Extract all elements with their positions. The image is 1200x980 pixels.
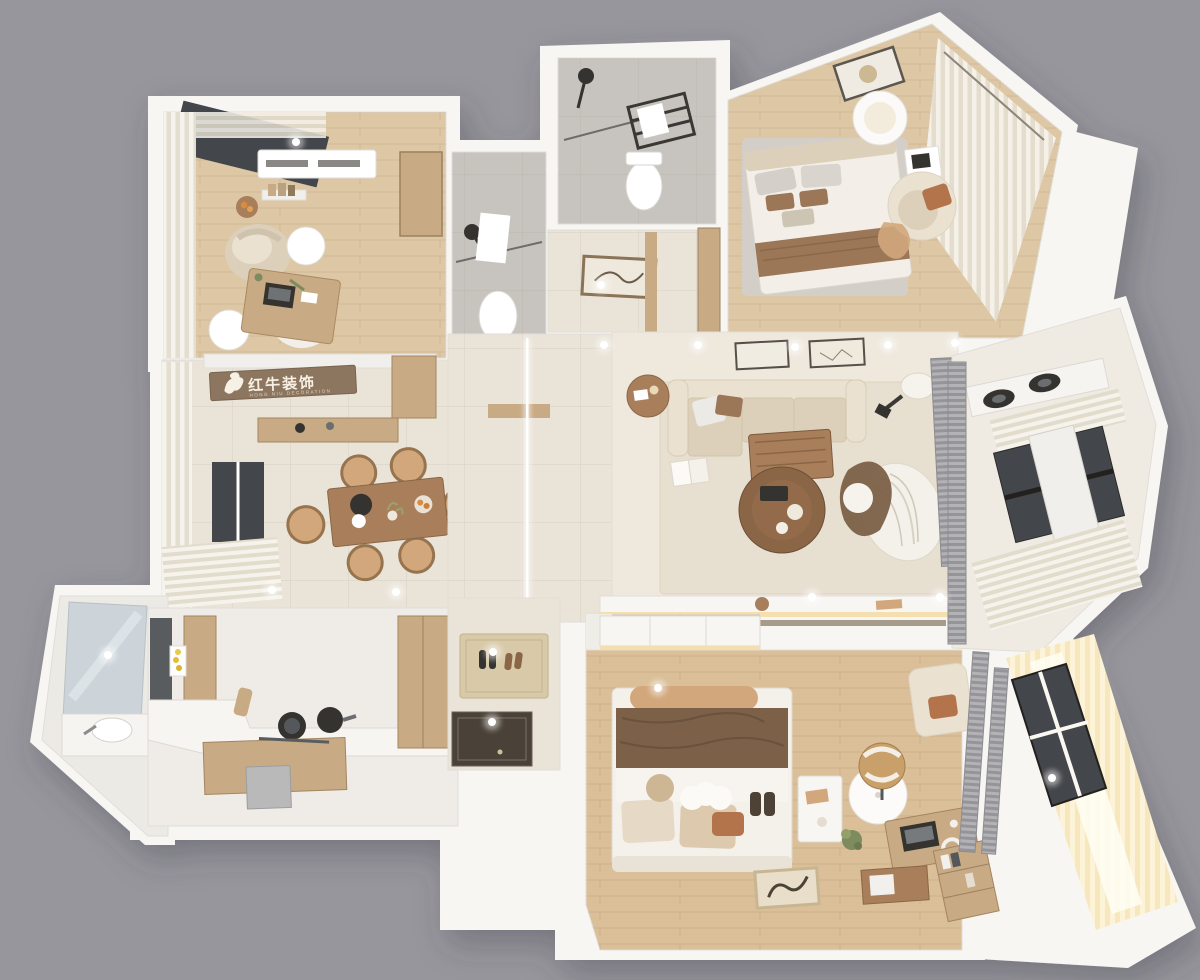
study-door-panel: [400, 152, 442, 236]
hall-door-jamb: [645, 232, 657, 332]
downlight: [932, 589, 948, 605]
clock: [817, 817, 827, 827]
downlight: [690, 337, 706, 353]
pillow-white: [843, 483, 873, 513]
downlight: [804, 589, 820, 605]
corridor-tile: [448, 334, 632, 622]
downlight: [288, 134, 304, 150]
gray-bin: [246, 765, 291, 809]
lemon: [176, 665, 182, 671]
lamp-cord: [875, 792, 881, 798]
black-tray: [760, 486, 788, 501]
coffee-table-round: [739, 467, 825, 553]
ac-vent: [266, 160, 308, 167]
downlight: [596, 337, 612, 353]
ac-vent: [318, 160, 360, 167]
closet-led: [600, 646, 760, 650]
corridor-ledge: [488, 404, 550, 418]
shoe-black: [479, 650, 486, 669]
orange-fruit: [247, 206, 253, 212]
pillow-brown: [765, 192, 795, 211]
lamp-inner: [864, 102, 896, 134]
toilet-tank: [626, 152, 662, 165]
dining-chair: [346, 544, 383, 581]
sofa-arm-left: [668, 380, 688, 456]
guest-bed: [744, 134, 912, 295]
kb-louver-strip: [948, 362, 966, 644]
side-table-left: [627, 375, 669, 417]
kitchen-balcony: [948, 308, 1156, 652]
pillow-gray: [800, 163, 841, 188]
storage-box: [861, 866, 929, 905]
pillow-tan: [621, 799, 675, 844]
bolster-blanket: [630, 686, 758, 710]
bath2-toilet: [626, 152, 662, 210]
lemon: [175, 649, 181, 655]
pillow-terracotta: [712, 812, 744, 836]
pillow-round: [646, 774, 674, 802]
kitchen: [148, 608, 458, 826]
tray-card: [633, 389, 648, 401]
kitchen-cabinet: [184, 616, 216, 704]
orange-fruit: [241, 202, 247, 208]
floor-artwork: [755, 868, 819, 908]
book: [278, 183, 286, 196]
bathroom-1: [452, 152, 546, 352]
downlight: [650, 680, 666, 696]
pillow-brown: [715, 394, 744, 417]
living-art-2: [809, 339, 864, 368]
stove-pot: [317, 707, 343, 733]
hall-artwork: [582, 256, 656, 298]
cup: [776, 522, 788, 534]
leaves: [841, 829, 851, 839]
living-art-1: [735, 341, 788, 370]
bath1-towel: [476, 213, 511, 264]
sideboard-counter: [258, 418, 398, 442]
slipper: [764, 792, 775, 816]
study-ac-unit: [258, 150, 376, 178]
downlight: [1044, 770, 1060, 786]
master-bedroom: [586, 650, 999, 950]
entry: [448, 598, 560, 770]
entry-doormat: [460, 634, 548, 698]
living-room: [600, 332, 966, 626]
fridge: [150, 618, 172, 700]
book: [268, 184, 276, 196]
dining-chair: [398, 537, 435, 574]
dining-curtain-fan: [162, 537, 283, 609]
downlight: [388, 584, 404, 600]
book: [288, 185, 295, 196]
closet-cabinets: [600, 616, 760, 650]
box-contents: [869, 874, 894, 896]
slim-floor-lamp: [526, 338, 529, 610]
downlight: [947, 335, 963, 351]
dining-room: 红牛装饰 HONG NIU DECORATION: [162, 354, 486, 622]
study-room: [164, 101, 446, 358]
sofa-arm-right: [846, 380, 866, 442]
vase: [755, 597, 769, 611]
spice-shelf: [170, 646, 186, 676]
leaves: [854, 842, 862, 850]
banana: [173, 657, 179, 663]
downlight: [880, 337, 896, 353]
downlight: [100, 647, 116, 663]
foyer-hall: [548, 228, 720, 332]
tall-cabinet: [392, 356, 436, 418]
downlight: [485, 644, 501, 660]
coffee-machine: [295, 423, 305, 433]
headboard: [612, 856, 792, 872]
bathroom-2: [558, 58, 716, 224]
study-side-table: [287, 227, 325, 265]
downlight: [484, 714, 500, 730]
pot-lid: [284, 718, 300, 734]
floor-plan-canvas: 红牛装饰 HONG NIU DECORATION: [0, 0, 1200, 980]
dining-table: [327, 477, 448, 547]
master-bench: [908, 662, 975, 737]
downlight: [593, 277, 609, 293]
corridor: [448, 334, 632, 622]
slipper: [750, 792, 761, 816]
floor-plan-render: 红牛装饰 HONG NIU DECORATION: [0, 0, 1200, 980]
master-bed: [612, 686, 792, 872]
bench-cushion: [928, 694, 959, 720]
study-tray-table: [236, 196, 258, 218]
door-handle: [498, 750, 503, 755]
teapot: [787, 504, 803, 520]
sink-basin: [92, 718, 132, 742]
dining-chair: [390, 447, 427, 484]
candle: [650, 386, 659, 395]
nightstand-item: [911, 153, 931, 169]
study-curtains: [164, 112, 196, 358]
study-curtain-top: [196, 112, 326, 138]
downlight: [787, 339, 803, 355]
console-book: [876, 599, 903, 610]
downlight: [264, 582, 280, 598]
kettle: [326, 422, 334, 430]
master-nightstand: [798, 776, 842, 842]
hall-wardrobe: [698, 228, 720, 332]
open-book: [671, 458, 710, 487]
pillow-brown: [799, 188, 829, 207]
